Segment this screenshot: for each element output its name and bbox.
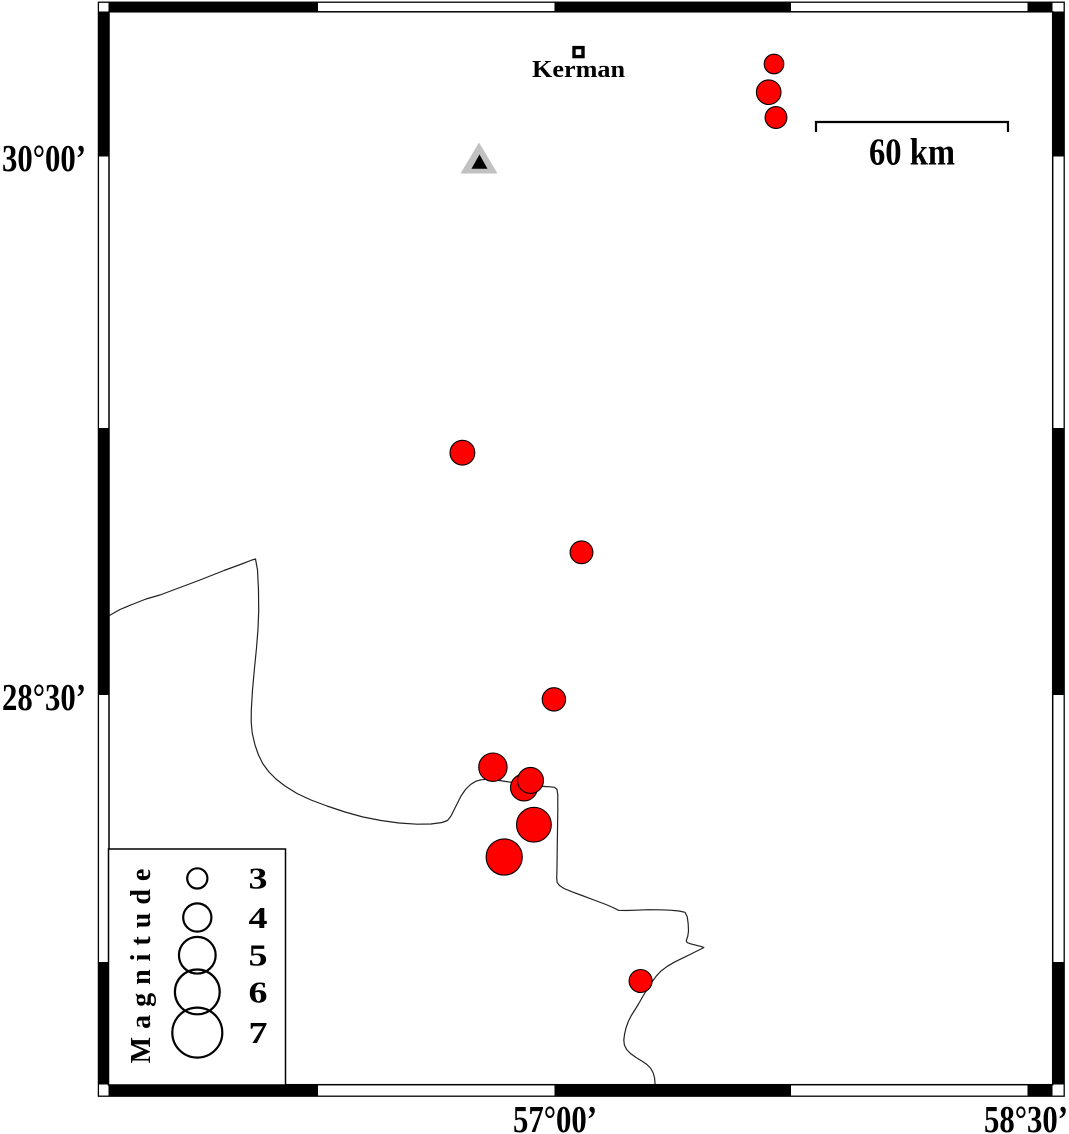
svg-text:28°30’: 28°30’ bbox=[2, 677, 86, 719]
svg-text:6: 6 bbox=[249, 974, 268, 1009]
svg-text:57°00’: 57°00’ bbox=[513, 1099, 597, 1134]
svg-text:Kerman: Kerman bbox=[532, 57, 625, 83]
svg-text:Magnitude: Magnitude bbox=[126, 861, 157, 1064]
svg-text:3: 3 bbox=[249, 861, 268, 896]
svg-text:30°00’: 30°00’ bbox=[2, 138, 86, 180]
svg-text:7: 7 bbox=[249, 1015, 268, 1050]
svg-text:4: 4 bbox=[249, 900, 268, 935]
svg-text:5: 5 bbox=[249, 938, 268, 973]
svg-text:60 km: 60 km bbox=[869, 132, 955, 174]
svg-text:58°30’: 58°30’ bbox=[984, 1099, 1068, 1134]
